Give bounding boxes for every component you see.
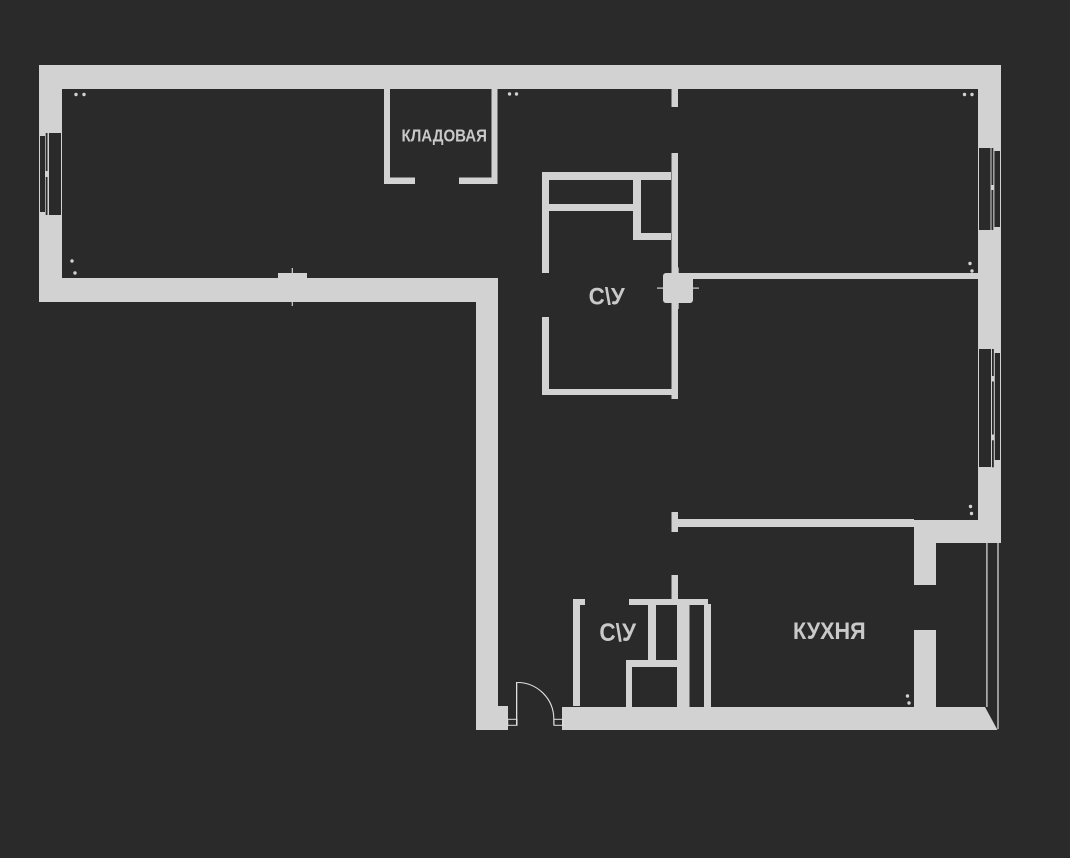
svg-text:С\У: С\У [589,283,626,310]
svg-text:КЛАДОВАЯ: КЛАДОВАЯ [401,125,487,145]
svg-text:С\У: С\У [599,619,636,647]
svg-text:КУХНЯ: КУХНЯ [793,618,866,645]
